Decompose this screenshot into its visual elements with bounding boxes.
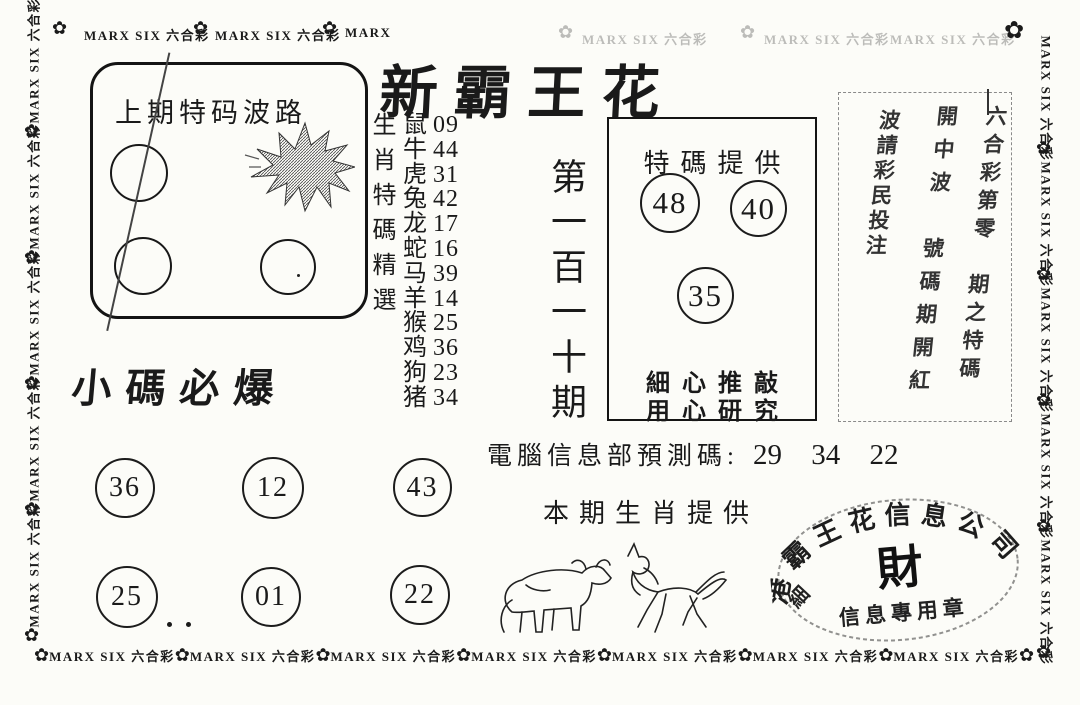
- empty-circle: [110, 144, 168, 202]
- zodiac-row: 鼠09: [403, 113, 459, 138]
- flower-icon: ✿: [456, 647, 471, 665]
- border-brand-text: MARX SIX 六合彩: [893, 646, 1019, 665]
- special-number-circle: 40: [730, 180, 787, 237]
- border-brand-text: MARX SIX 六合彩: [24, 272, 43, 376]
- border-brand-text: MARX SIX 六合彩: [84, 25, 210, 44]
- special-number-circle: 48: [640, 173, 700, 233]
- zodiac-number: 44: [433, 138, 459, 163]
- zodiac-row: 虎31: [403, 163, 459, 188]
- border-brand-text: MARX SIX 六合彩: [49, 646, 175, 665]
- small-codes-heading: 小碼必爆: [69, 356, 290, 414]
- zodiac-animal: 蛇: [403, 237, 433, 262]
- company-stamp: 港霸王花信息公司 財 信息專用章 細: [764, 479, 1033, 659]
- special-number-box: 特碼提供 48 40 35 細心推敲 用心研究: [607, 117, 817, 421]
- flower-icon: ✿: [24, 627, 39, 645]
- border-brand-text: MARX SIX 六合彩: [24, 524, 43, 628]
- flower-icon: ✿: [1004, 18, 1024, 42]
- border-brand-text: MARX SIX 六合彩: [471, 646, 597, 665]
- zodiac-number: 31: [433, 163, 459, 188]
- zodiac-number: 14: [433, 287, 459, 312]
- border-brand-text: MARX SIX 六合彩: [190, 646, 316, 665]
- stray-ink-mark: [987, 89, 989, 115]
- flower-icon: ✿: [1036, 518, 1051, 536]
- issue-number-label: 第一百一十期: [540, 158, 592, 428]
- zodiac-number: 42: [433, 187, 459, 212]
- ink-dot: [167, 622, 172, 627]
- border-brand-text: MARX SIX 六合彩: [612, 646, 738, 665]
- border-brand-text: MARX SIX 六合彩: [1038, 540, 1057, 644]
- border-brand-text: MARX SIX 六合彩: [24, 398, 43, 502]
- horse-drawing: [598, 532, 730, 642]
- flower-icon: ✿: [315, 647, 330, 665]
- zodiac-number: 39: [433, 262, 459, 287]
- small-code-circle: 01: [241, 567, 301, 627]
- flower-icon: ✿: [1036, 140, 1051, 158]
- flower-icon: ✿: [193, 20, 208, 38]
- zodiac-row: 猴25: [403, 311, 459, 336]
- zodiac-animal: 猪: [403, 386, 433, 411]
- flower-icon: ✿: [34, 647, 49, 665]
- zodiac-list: 鼠09 牛44 虎31 兔42 龙17 蛇16 马39 羊14 猴25 鸡36 …: [403, 113, 459, 411]
- border-brand-text: MARX SIX 六合彩: [24, 146, 43, 250]
- zodiac-number: 25: [433, 311, 459, 336]
- flower-icon: ✿: [597, 647, 612, 665]
- previous-draw-box: 上期特码波路: [90, 62, 368, 319]
- zodiac-row: 猪34: [403, 386, 459, 411]
- special-number-circle: 35: [677, 267, 734, 324]
- zodiac-animal: 牛: [403, 138, 433, 163]
- special-box-note-2: 用心研究: [609, 391, 815, 426]
- zodiac-row: 鸡36: [403, 336, 459, 361]
- small-code-circle: 36: [95, 458, 155, 518]
- empty-circle: [260, 239, 316, 295]
- handwritten-column-1: 六合彩第零 期之特碼: [952, 105, 1011, 385]
- handwritten-column-3: 波請彩民投注: [859, 109, 905, 259]
- zodiac-animal: 鼠: [403, 113, 433, 138]
- small-code-circle: 22: [390, 565, 450, 625]
- border-brand-text: MARX SIX 六合彩: [1038, 288, 1057, 392]
- zodiac-selection-heading: 生肖特碼精選: [364, 112, 399, 347]
- border-brand-text: MARX: [345, 25, 391, 41]
- flower-icon: ✿: [558, 24, 573, 42]
- border-brand-text: MARX SIX 六合彩: [764, 29, 890, 48]
- zodiac-number: 36: [433, 336, 459, 361]
- zodiac-number: 09: [433, 113, 459, 138]
- zodiac-animal: 龙: [403, 212, 433, 237]
- stamp-bottom-text: 信息專用章: [838, 595, 970, 630]
- flower-icon: ✿: [322, 20, 337, 38]
- zodiac-row: 牛44: [403, 138, 459, 163]
- zodiac-animal: 马: [403, 262, 433, 287]
- ink-dot: [297, 274, 300, 277]
- prediction-label: 電腦信息部預測碼:: [487, 436, 739, 472]
- ink-dot: [186, 622, 191, 627]
- flower-icon: ✿: [740, 24, 755, 42]
- flower-icon: ✿: [1036, 392, 1051, 410]
- small-code-circle: 43: [393, 458, 452, 517]
- flower-icon: ✿: [1036, 266, 1051, 284]
- zodiac-animal: 狗: [403, 361, 433, 386]
- zodiac-row: 羊14: [403, 287, 459, 312]
- small-code-circle: 25: [96, 566, 158, 628]
- computer-prediction-line: 電腦信息部預測碼: 29 34 22: [487, 436, 898, 472]
- border-brand-text: MARX SIX 六合彩: [331, 646, 457, 665]
- handwritten-note-box: 六合彩第零 期之特碼 開中波 號碼期開紅 波請彩民投注: [838, 92, 1012, 422]
- zodiac-animal: 虎: [403, 163, 433, 188]
- border-brand-text: MARX SIX 六合彩: [890, 29, 1016, 48]
- special-box-title: 特碼提供: [609, 143, 815, 180]
- zodiac-number: 23: [433, 361, 459, 386]
- zodiac-number: 17: [433, 212, 459, 237]
- zodiac-row: 狗23: [403, 361, 459, 386]
- flower-icon: ✿: [1019, 647, 1034, 665]
- flower-icon: ✿: [52, 20, 67, 38]
- flower-icon: ✿: [738, 647, 753, 665]
- handwritten-column-2: 開中波 號碼期開紅: [901, 105, 962, 402]
- border-brand-text: MARX SIX 六合彩: [24, 20, 43, 124]
- zodiac-row: 兔42: [403, 187, 459, 212]
- zodiac-animal: 猴: [403, 311, 433, 336]
- stamp-center-char: 財: [875, 541, 925, 596]
- lottery-sheet-scan: ✿ MARX SIX 六合彩 ✿ MARX SIX 六合彩 ✿ MARX ✿ M…: [0, 0, 1080, 705]
- this-issue-heading: 本期生肖提供: [543, 493, 759, 530]
- prediction-numbers: 29 34 22: [753, 439, 899, 472]
- small-code-circle: 12: [242, 457, 304, 519]
- border-brand-text: MARX SIX 六合彩: [1038, 162, 1057, 266]
- flower-icon: ✿: [175, 647, 190, 665]
- zodiac-row: 蛇16: [403, 237, 459, 262]
- border-brand-text: MARX SIX 六合彩: [1038, 36, 1057, 140]
- zodiac-number: 16: [433, 237, 459, 262]
- zodiac-row: 马39: [403, 262, 459, 287]
- zodiac-row: 龙17: [403, 212, 459, 237]
- zodiac-animal: 兔: [403, 187, 433, 212]
- zodiac-animal: 羊: [403, 287, 433, 312]
- border-brand-text: MARX SIX 六合彩: [1038, 414, 1057, 518]
- zodiac-animal: 鸡: [403, 336, 433, 361]
- starburst-icon: [243, 121, 355, 213]
- flower-icon: ✿: [1036, 644, 1051, 662]
- zodiac-number: 34: [433, 386, 459, 411]
- ox-drawing: [492, 540, 614, 640]
